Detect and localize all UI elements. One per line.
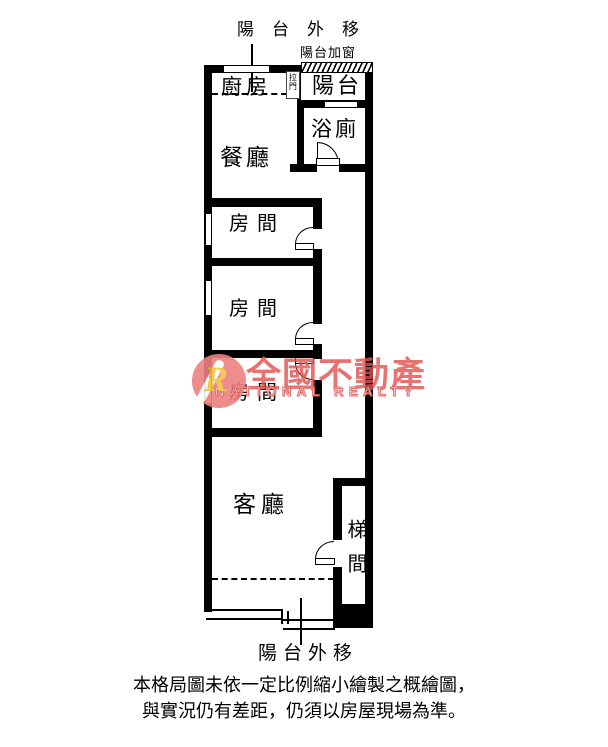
realty-logo-circle-icon: R — [192, 354, 246, 408]
watermark: R 全國不動產 NATIONAL REALTY — [0, 0, 608, 747]
floor-plan: 陽台外移 陽台加窗 拉門 廚房 陽台 浴 — [0, 0, 608, 747]
watermark-brand-en: NATIONAL REALTY — [215, 384, 418, 399]
realty-logo-letter: R — [204, 358, 228, 400]
